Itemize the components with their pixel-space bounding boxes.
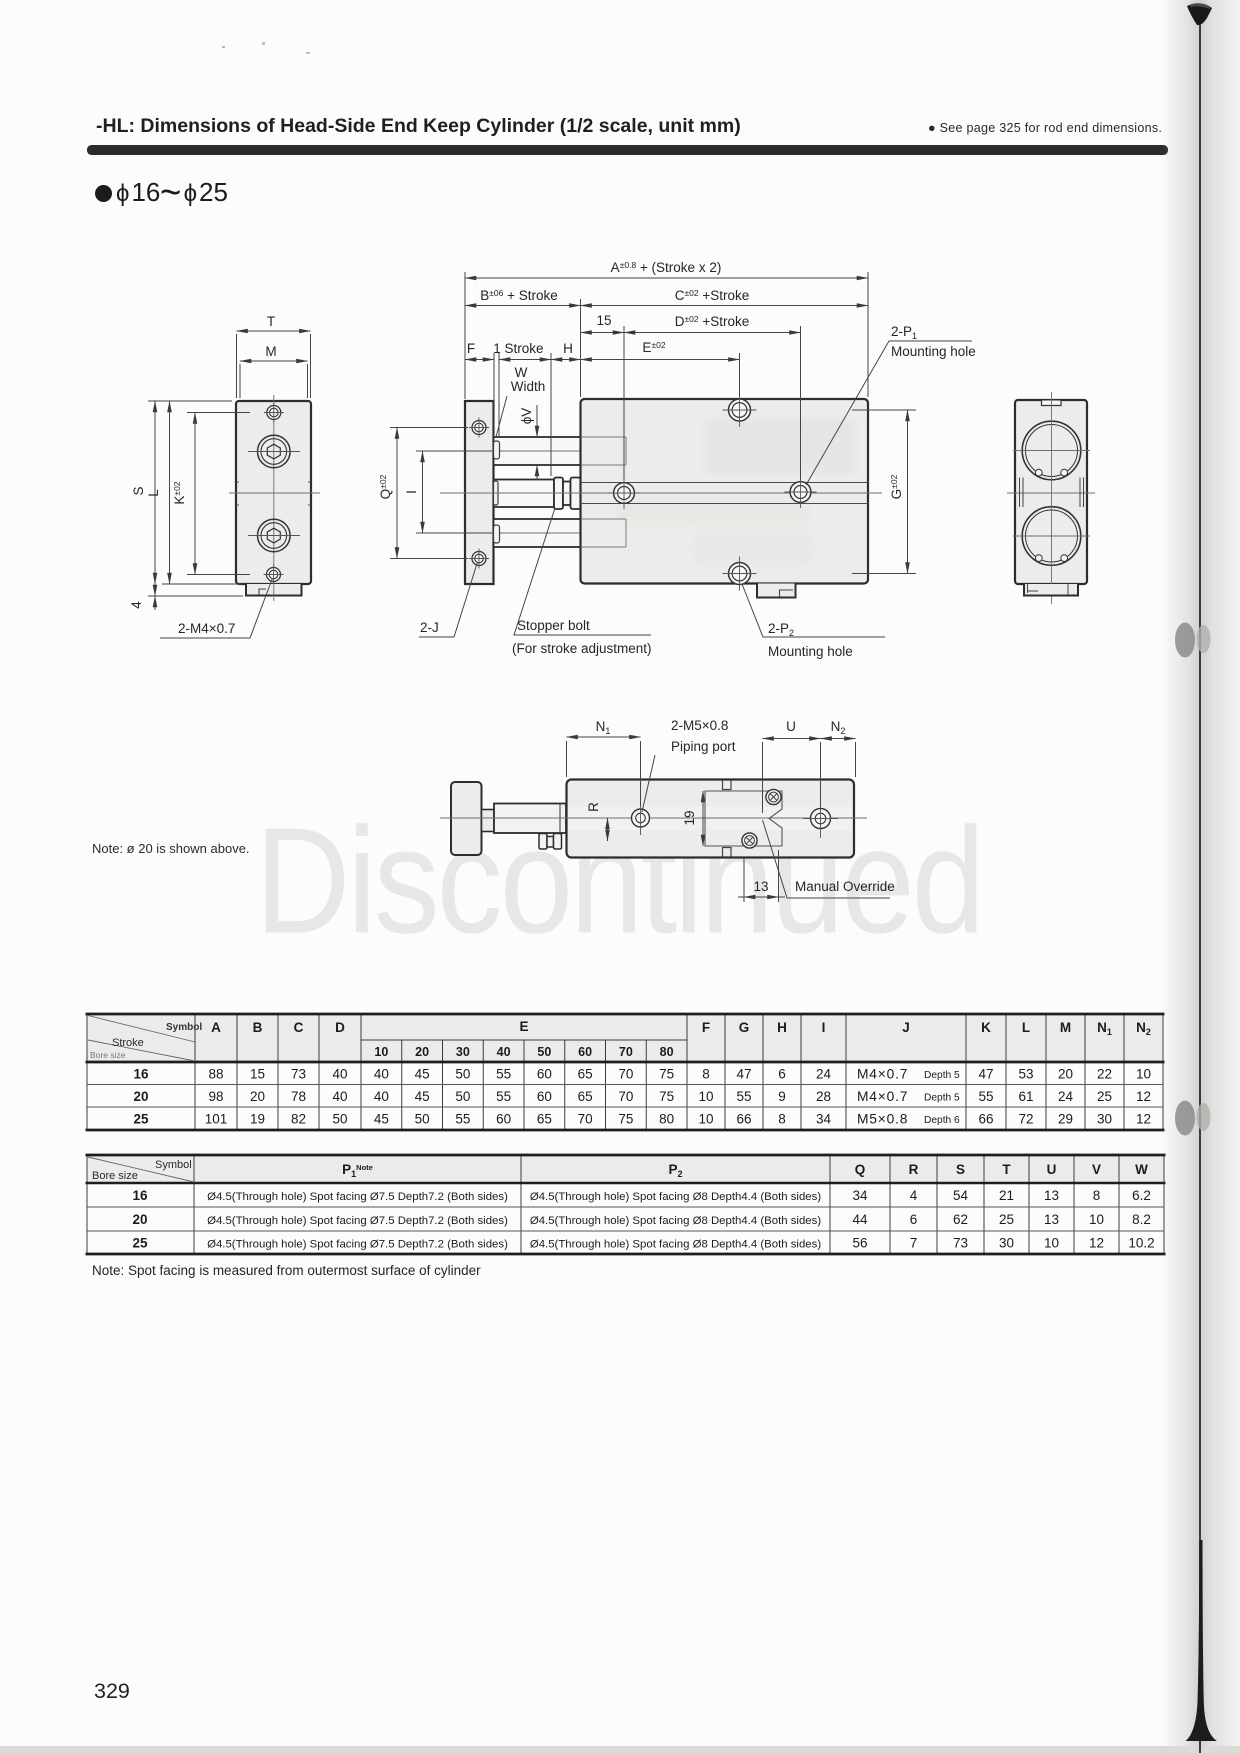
svg-text:Stroke: Stroke <box>504 341 543 356</box>
svg-text:8.2: 8.2 <box>1132 1212 1151 1227</box>
svg-text:J: J <box>902 1020 910 1035</box>
svg-text:G±02: G±02 <box>889 474 904 499</box>
svg-text:R: R <box>586 802 601 812</box>
svg-text:N2: N2 <box>831 719 846 736</box>
svg-text:45: 45 <box>415 1067 430 1082</box>
svg-text:C±02 +Stroke: C±02 +Stroke <box>675 288 750 303</box>
svg-text:2-M4×0.7: 2-M4×0.7 <box>178 621 235 636</box>
svg-text:Symbol: Symbol <box>166 1022 202 1033</box>
svg-text:M: M <box>265 344 276 359</box>
svg-text:K: K <box>981 1020 991 1035</box>
svg-text:T: T <box>267 314 275 329</box>
svg-text:55: 55 <box>496 1067 511 1082</box>
svg-text:13: 13 <box>1044 1188 1059 1203</box>
svg-text:65: 65 <box>578 1067 593 1082</box>
svg-text:30: 30 <box>1097 1112 1112 1127</box>
svg-text:25: 25 <box>999 1212 1014 1227</box>
svg-text:6.2: 6.2 <box>1132 1188 1151 1203</box>
svg-text:10.2: 10.2 <box>1128 1236 1154 1251</box>
svg-text:47: 47 <box>978 1067 993 1082</box>
svg-text:ϕV: ϕV <box>519 408 534 425</box>
svg-text:66: 66 <box>978 1112 993 1127</box>
svg-text:Mounting hole: Mounting hole <box>891 344 976 359</box>
svg-text:Ø4.5(Through hole) Spot facing: Ø4.5(Through hole) Spot facing Ø8 Depth4… <box>530 1239 821 1251</box>
svg-text:S: S <box>131 486 146 495</box>
svg-text:20: 20 <box>132 1212 147 1227</box>
svg-text:2-J: 2-J <box>420 620 439 635</box>
svg-text:4: 4 <box>910 1188 918 1203</box>
svg-text:7: 7 <box>910 1236 918 1251</box>
svg-text:2-M5×0.8: 2-M5×0.8 <box>671 718 728 733</box>
svg-text:20: 20 <box>1058 1067 1073 1082</box>
svg-text:6: 6 <box>910 1212 918 1227</box>
svg-text:T: T <box>1002 1162 1011 1177</box>
svg-text:I: I <box>822 1020 826 1035</box>
svg-text:C: C <box>294 1020 304 1035</box>
svg-text:Ø4.5(Through hole) Spot facing: Ø4.5(Through hole) Spot facing Ø7.5 Dept… <box>207 1215 508 1227</box>
svg-text:H: H <box>563 341 573 356</box>
svg-text:34: 34 <box>852 1188 868 1203</box>
svg-text:Width: Width <box>511 379 546 394</box>
svg-text:E: E <box>519 1019 528 1034</box>
svg-text:28: 28 <box>816 1089 831 1104</box>
svg-text:A: A <box>211 1020 221 1035</box>
svg-text:N1: N1 <box>596 719 611 736</box>
svg-text:70: 70 <box>618 1089 633 1104</box>
svg-text:E±02: E±02 <box>642 340 665 355</box>
svg-text:80: 80 <box>659 1112 674 1127</box>
svg-text:16: 16 <box>133 1067 149 1082</box>
svg-text:34: 34 <box>816 1112 832 1127</box>
svg-text:60: 60 <box>537 1067 552 1082</box>
svg-text:73: 73 <box>291 1067 306 1082</box>
svg-text:44: 44 <box>852 1212 868 1227</box>
svg-text:10: 10 <box>698 1112 713 1127</box>
svg-text:29: 29 <box>1058 1112 1073 1127</box>
svg-text:I: I <box>404 490 419 494</box>
svg-text:Q±02: Q±02 <box>378 474 393 499</box>
svg-text:40: 40 <box>374 1089 389 1104</box>
svg-text:Stroke: Stroke <box>112 1037 144 1049</box>
svg-text:50: 50 <box>455 1067 470 1082</box>
svg-text:20: 20 <box>133 1089 148 1104</box>
svg-text:12: 12 <box>1136 1112 1151 1127</box>
svg-text:B: B <box>253 1020 263 1035</box>
svg-text:Depth 6: Depth 6 <box>924 1115 960 1126</box>
svg-text:K±02: K±02 <box>172 481 187 504</box>
svg-text:65: 65 <box>578 1089 593 1104</box>
svg-text:55: 55 <box>455 1112 470 1127</box>
svg-text:Symbol: Symbol <box>155 1159 192 1171</box>
svg-text:Ø4.5(Through hole) Spot facing: Ø4.5(Through hole) Spot facing Ø8 Depth4… <box>530 1215 821 1227</box>
svg-text:M5×0.8: M5×0.8 <box>857 1112 908 1127</box>
svg-text:78: 78 <box>291 1089 306 1104</box>
svg-text:12: 12 <box>1136 1089 1151 1104</box>
svg-text:4: 4 <box>129 601 144 609</box>
svg-text:62: 62 <box>953 1212 968 1227</box>
svg-text:25: 25 <box>132 1236 148 1251</box>
svg-text:Ø4.5(Through hole) Spot facing: Ø4.5(Through hole) Spot facing Ø7.5 Dept… <box>207 1239 508 1251</box>
svg-text:45: 45 <box>374 1112 389 1127</box>
svg-text:Piping port: Piping port <box>671 739 736 754</box>
svg-text:54: 54 <box>953 1188 969 1203</box>
svg-text:M4×0.7: M4×0.7 <box>857 1067 908 1082</box>
svg-text:G: G <box>739 1020 750 1035</box>
svg-text:D±02 +Stroke: D±02 +Stroke <box>675 314 750 329</box>
svg-text:53: 53 <box>1018 1067 1033 1082</box>
svg-text:25: 25 <box>1097 1089 1112 1104</box>
svg-text:F: F <box>702 1020 710 1035</box>
svg-text:56: 56 <box>852 1236 867 1251</box>
svg-text:2-P2: 2-P2 <box>768 621 794 638</box>
svg-text:20: 20 <box>250 1089 265 1104</box>
svg-text:20: 20 <box>415 1045 429 1059</box>
svg-text:70: 70 <box>618 1067 633 1082</box>
svg-text:10: 10 <box>1044 1236 1059 1251</box>
svg-text:47: 47 <box>736 1067 751 1082</box>
svg-text:50: 50 <box>415 1112 430 1127</box>
svg-text:21: 21 <box>999 1188 1014 1203</box>
svg-text:82: 82 <box>291 1112 306 1127</box>
svg-text:8: 8 <box>702 1067 710 1082</box>
svg-text:M4×0.7: M4×0.7 <box>857 1089 908 1104</box>
svg-text:9: 9 <box>778 1089 786 1104</box>
svg-text:19: 19 <box>250 1112 265 1127</box>
svg-text:40: 40 <box>497 1045 511 1059</box>
svg-text:Ø4.5(Through hole) Spot facing: Ø4.5(Through hole) Spot facing Ø7.5 Dept… <box>207 1191 508 1203</box>
svg-text:75: 75 <box>618 1112 633 1127</box>
svg-text:75: 75 <box>659 1089 674 1104</box>
svg-text:19: 19 <box>682 810 697 825</box>
svg-text:30: 30 <box>999 1236 1014 1251</box>
svg-text:60: 60 <box>578 1045 592 1059</box>
svg-text:70: 70 <box>619 1045 633 1059</box>
svg-text:61: 61 <box>1018 1089 1033 1104</box>
svg-text:101: 101 <box>205 1112 228 1127</box>
svg-text:66: 66 <box>736 1112 751 1127</box>
svg-text:24: 24 <box>816 1067 832 1082</box>
svg-text:F: F <box>467 341 475 356</box>
svg-text:55: 55 <box>496 1089 511 1104</box>
svg-text:10: 10 <box>698 1089 713 1104</box>
svg-text:H: H <box>777 1020 787 1035</box>
svg-text:Bore size: Bore size <box>92 1170 138 1182</box>
svg-text:73: 73 <box>953 1236 968 1251</box>
svg-text:1: 1 <box>493 341 501 356</box>
svg-text:Depth 5: Depth 5 <box>924 1093 960 1104</box>
svg-text:L: L <box>146 489 161 497</box>
svg-text:W: W <box>1135 1162 1148 1177</box>
svg-text:12: 12 <box>1089 1236 1104 1251</box>
svg-text:25: 25 <box>133 1112 149 1127</box>
svg-text:10: 10 <box>1089 1212 1104 1227</box>
svg-text:50: 50 <box>537 1045 551 1059</box>
svg-text:L: L <box>1022 1020 1030 1035</box>
svg-text:D: D <box>335 1020 345 1035</box>
svg-text:13: 13 <box>753 879 768 894</box>
svg-text:16: 16 <box>132 1188 148 1203</box>
svg-text:70: 70 <box>578 1112 593 1127</box>
svg-text:U: U <box>786 719 796 734</box>
svg-text:M: M <box>1060 1020 1071 1035</box>
svg-text:40: 40 <box>332 1089 347 1104</box>
svg-text:75: 75 <box>659 1067 674 1082</box>
svg-text:72: 72 <box>1018 1112 1033 1127</box>
svg-text:50: 50 <box>332 1112 347 1127</box>
svg-text:88: 88 <box>208 1067 223 1082</box>
svg-text:65: 65 <box>537 1112 552 1127</box>
svg-text:45: 45 <box>415 1089 430 1104</box>
svg-text:10: 10 <box>1136 1067 1151 1082</box>
svg-text:55: 55 <box>736 1089 751 1104</box>
svg-text:60: 60 <box>537 1089 552 1104</box>
svg-text:8: 8 <box>778 1112 786 1127</box>
svg-text:80: 80 <box>660 1045 674 1059</box>
svg-text:Mounting hole: Mounting hole <box>768 644 853 659</box>
svg-text:(For stroke adjustment): (For stroke adjustment) <box>512 641 652 656</box>
svg-text:40: 40 <box>332 1067 347 1082</box>
svg-text:22: 22 <box>1097 1067 1112 1082</box>
svg-text:Q: Q <box>855 1162 866 1177</box>
svg-text:15: 15 <box>596 313 611 328</box>
svg-text:Bore size: Bore size <box>90 1050 126 1060</box>
svg-text:13: 13 <box>1044 1212 1059 1227</box>
svg-text:98: 98 <box>208 1089 223 1104</box>
svg-text:60: 60 <box>496 1112 511 1127</box>
svg-text:Depth 5: Depth 5 <box>924 1070 960 1081</box>
svg-text:A±0.8 + (Stroke x 2): A±0.8 + (Stroke x 2) <box>611 260 722 275</box>
svg-text:55: 55 <box>978 1089 993 1104</box>
svg-text:6: 6 <box>778 1067 786 1082</box>
svg-text:Manual Override: Manual Override <box>795 879 895 894</box>
svg-text:Ø4.5(Through hole) Spot facing: Ø4.5(Through hole) Spot facing Ø8 Depth4… <box>530 1191 821 1203</box>
svg-text:30: 30 <box>456 1045 470 1059</box>
svg-text:24: 24 <box>1058 1089 1074 1104</box>
svg-text:8: 8 <box>1093 1188 1101 1203</box>
svg-text:W: W <box>515 365 528 380</box>
svg-text:U: U <box>1047 1162 1057 1177</box>
svg-text:V: V <box>1092 1162 1101 1177</box>
svg-text:R: R <box>909 1162 919 1177</box>
svg-text:S: S <box>956 1162 965 1177</box>
svg-text:2-P1: 2-P1 <box>891 324 917 341</box>
svg-text:15: 15 <box>250 1067 265 1082</box>
svg-text:B±06 + Stroke: B±06 + Stroke <box>480 288 558 303</box>
svg-text:Stopper bolt: Stopper bolt <box>517 618 590 633</box>
svg-text:40: 40 <box>374 1067 389 1082</box>
svg-text:10: 10 <box>374 1045 388 1059</box>
svg-text:50: 50 <box>455 1089 470 1104</box>
